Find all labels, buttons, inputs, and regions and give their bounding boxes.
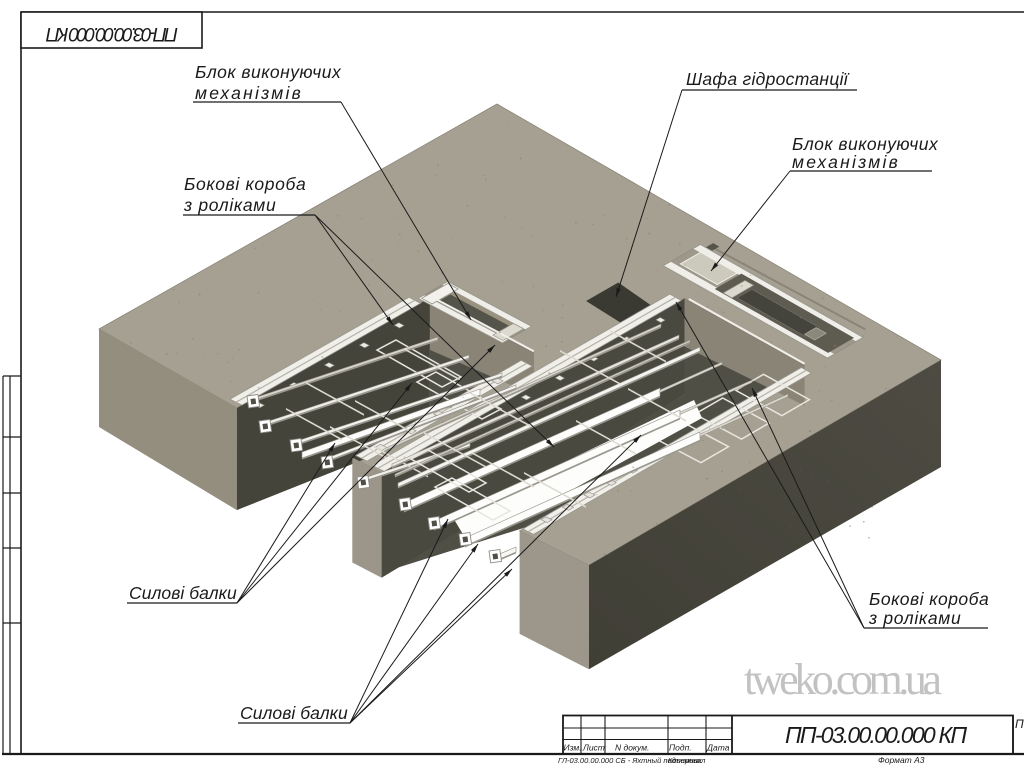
svg-text:Блок виконуючих: Блок виконуючих: [195, 62, 342, 82]
svg-text:П: П: [1015, 717, 1024, 731]
svg-text:Подп.: Подп.: [669, 743, 692, 753]
svg-text:Силові балки: Силові балки: [240, 703, 348, 723]
svg-text:Изм.: Изм.: [564, 743, 582, 753]
svg-text:Дата: Дата: [706, 743, 730, 753]
svg-text:Шафа гідростанції: Шафа гідростанції: [686, 69, 850, 89]
svg-text:з роліками: з роліками: [868, 608, 961, 628]
svg-text:Силові балки: Силові балки: [129, 583, 237, 603]
svg-text:Бокові короба: Бокові короба: [869, 589, 989, 609]
svg-text:з роліками: з роліками: [183, 195, 276, 215]
svg-text:механізмів: механізмів: [792, 152, 898, 172]
svg-text:ПП-03.00.00.000 КП: ПП-03.00.00.000 КП: [46, 23, 178, 44]
svg-text:механізмів: механізмів: [195, 83, 301, 103]
svg-text:Формат А3: Формат А3: [878, 755, 925, 765]
svg-text:Блок виконуючих: Блок виконуючих: [792, 134, 939, 154]
svg-text:Лист: Лист: [582, 743, 605, 753]
svg-text:Копировал: Копировал: [668, 756, 706, 765]
svg-text:ПП-03.00.00.000 КП: ПП-03.00.00.000 КП: [785, 722, 967, 748]
svg-text:tweko.com.ua: tweko.com.ua: [744, 655, 942, 704]
svg-text:Бокові короба: Бокові короба: [184, 174, 306, 194]
svg-text:N докум.: N докум.: [615, 743, 649, 753]
